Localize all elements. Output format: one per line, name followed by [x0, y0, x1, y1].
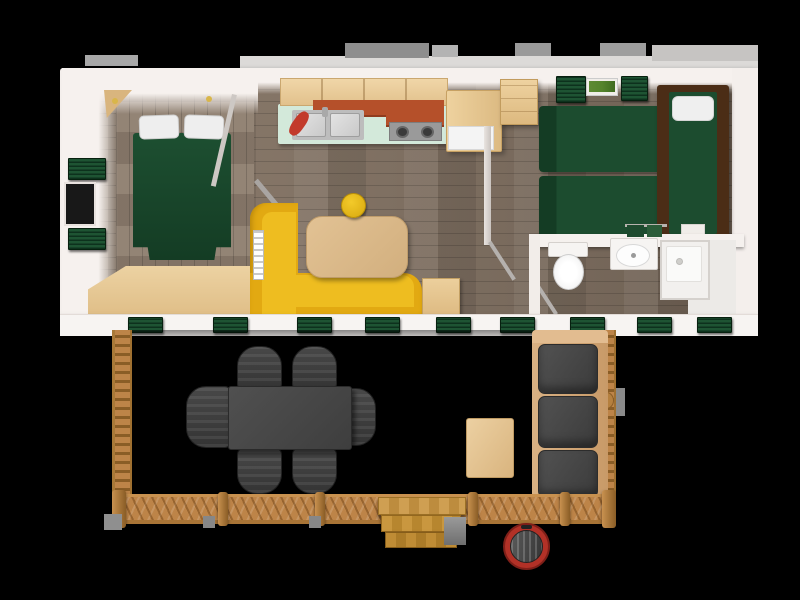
concrete-block [104, 514, 122, 530]
barbecue-lid [510, 530, 543, 563]
barbecue-handle [521, 525, 532, 529]
concrete-block [444, 517, 466, 545]
entry-steps [378, 497, 466, 515]
concrete-block [203, 516, 215, 528]
concrete-block [309, 516, 321, 528]
floorplan-render [0, 0, 800, 600]
concrete-block [616, 388, 625, 416]
ground-items [0, 0, 800, 600]
